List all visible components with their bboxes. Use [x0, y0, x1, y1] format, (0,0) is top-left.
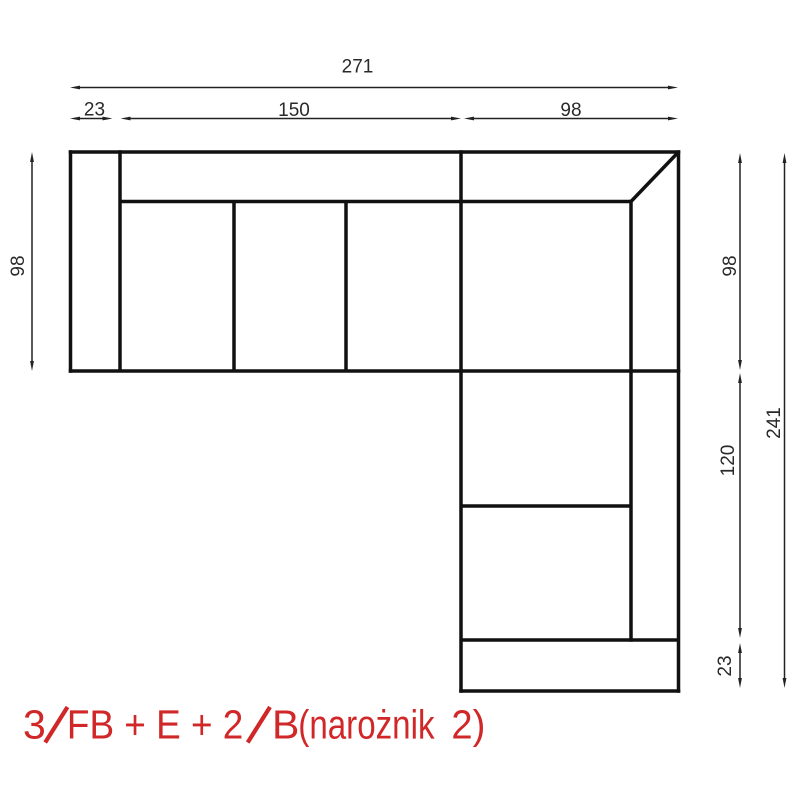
svg-text:2): 2) [451, 702, 485, 748]
svg-text:3: 3 [23, 702, 46, 748]
svg-text:120: 120 [718, 445, 739, 477]
svg-text:23: 23 [84, 100, 105, 121]
svg-text:271: 271 [342, 57, 374, 78]
svg-text:241: 241 [764, 407, 785, 439]
svg-text:B: B [272, 702, 299, 748]
svg-text:(narożnik: (narożnik [298, 701, 435, 747]
svg-text:98: 98 [720, 255, 741, 276]
svg-text:98: 98 [560, 100, 581, 121]
svg-text:FB + E + 2: FB + E + 2 [67, 703, 243, 748]
svg-text:150: 150 [278, 100, 310, 121]
svg-text:23: 23 [715, 655, 736, 676]
svg-text:98: 98 [8, 255, 29, 276]
